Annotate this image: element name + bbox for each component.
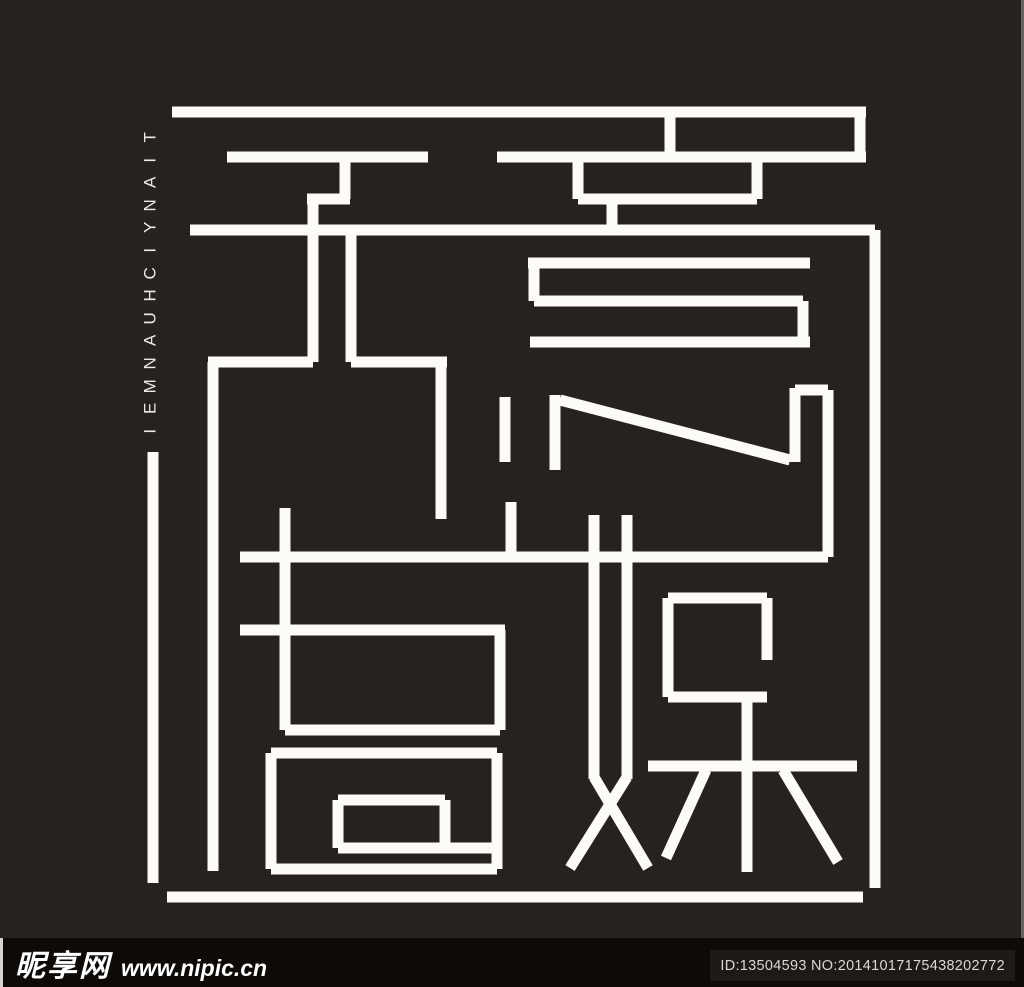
brand-letter: E: [139, 396, 162, 420]
nipic-site-name: 昵享网: [15, 941, 111, 985]
page: TIANYICHUANMEI 昵享网 www.nipic.cn ID:13504…: [0, 0, 1024, 987]
brand-letter: U: [139, 306, 162, 330]
brand-letter: I: [139, 419, 162, 443]
watermark-bar: 昵享网 www.nipic.cn ID:13504593 NO:20141017…: [0, 938, 1024, 987]
brand-letter: A: [139, 170, 162, 194]
image-id-badge: ID:13504593 NO:20141017175438202772: [710, 950, 1015, 981]
brand-letter: N: [139, 351, 162, 375]
brand-letter: H: [139, 283, 162, 307]
brand-letter: I: [139, 148, 162, 172]
nipic-brand: 昵享网 www.nipic.cn: [15, 941, 267, 985]
logo-stroke: [560, 400, 790, 460]
logo-stroke: [666, 770, 706, 858]
brand-letter: Y: [139, 216, 162, 240]
brand-letter: M: [139, 374, 162, 398]
brand-letter: I: [139, 238, 162, 262]
brand-letter: A: [139, 329, 162, 353]
logo-stroke: [783, 770, 838, 862]
brand-vertical-text: TIANYICHUANMEI: [138, 126, 162, 442]
logo-artwork-area: TIANYICHUANMEI: [0, 0, 1024, 938]
nipic-site-url: www.nipic.cn: [121, 955, 267, 982]
brand-letter: T: [139, 125, 162, 149]
brand-letter: N: [139, 193, 162, 217]
brand-letter: C: [139, 261, 162, 285]
